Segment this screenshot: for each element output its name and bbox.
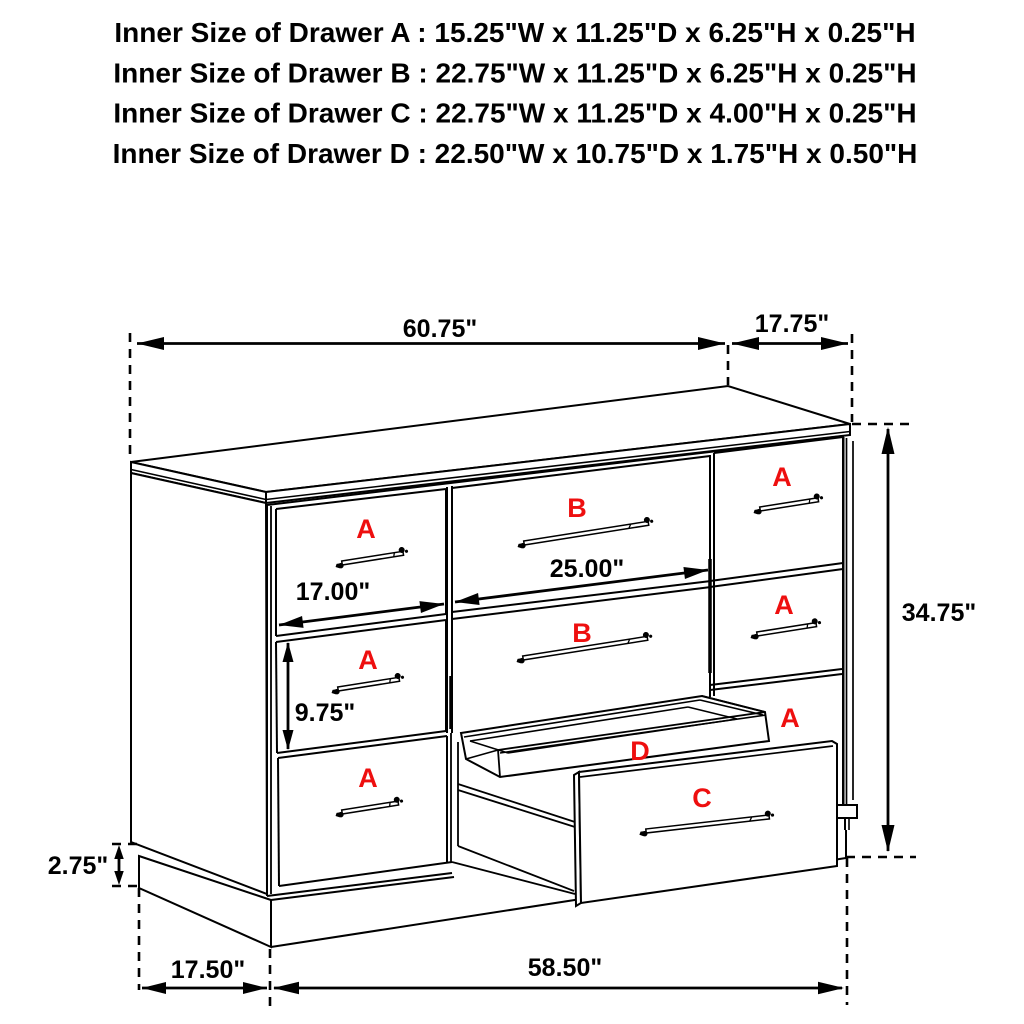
svg-text:B: B xyxy=(567,493,587,523)
svg-text:D: D xyxy=(630,736,650,766)
svg-text:17.75": 17.75" xyxy=(755,310,829,338)
svg-text:A: A xyxy=(772,462,792,492)
svg-text:58.50": 58.50" xyxy=(528,954,602,982)
svg-text:A: A xyxy=(358,763,378,793)
svg-text:Inner Size of Drawer C : 22.75: Inner Size of Drawer C : 22.75"W x 11.25… xyxy=(113,98,916,129)
svg-text:60.75": 60.75" xyxy=(403,315,477,343)
svg-text:A: A xyxy=(774,590,794,620)
svg-text:17.00": 17.00" xyxy=(296,578,370,606)
svg-text:Inner Size of Drawer D : 22.50: Inner Size of Drawer D : 22.50"W x 10.75… xyxy=(113,138,918,169)
svg-text:34.75": 34.75" xyxy=(902,599,976,627)
svg-text:Inner Size of Drawer A : 15.25: Inner Size of Drawer A : 15.25"W x 11.25… xyxy=(114,17,915,48)
svg-text:A: A xyxy=(356,514,376,544)
svg-text:B: B xyxy=(572,618,592,648)
svg-text:A: A xyxy=(780,703,800,733)
svg-text:A: A xyxy=(358,645,378,675)
svg-text:C: C xyxy=(692,783,712,813)
svg-text:17.50": 17.50" xyxy=(171,956,245,984)
svg-text:25.00": 25.00" xyxy=(550,555,624,583)
svg-text:Inner Size of Drawer B : 22.75: Inner Size of Drawer B : 22.75"W x 11.25… xyxy=(113,57,916,88)
svg-text:9.75": 9.75" xyxy=(295,699,356,727)
svg-text:2.75": 2.75" xyxy=(48,852,109,880)
